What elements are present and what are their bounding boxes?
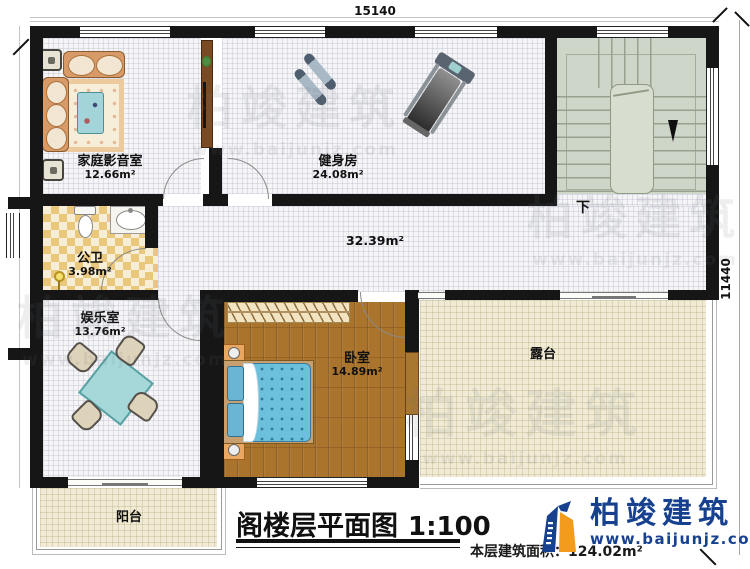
brand-name: 柏竣建筑 [590, 498, 750, 530]
wardrobe-rod [227, 311, 350, 313]
wall [367, 477, 418, 488]
wall [8, 348, 30, 360]
window [257, 477, 367, 488]
room-label-balcony: 阳台 [99, 510, 159, 525]
wall [30, 477, 68, 488]
stairs-landing [610, 84, 654, 194]
window [415, 26, 497, 38]
wall [405, 290, 419, 352]
dimension-line [739, 20, 740, 555]
wall [706, 26, 719, 68]
dimension-tick [712, 7, 728, 23]
window [80, 26, 170, 38]
pillow [227, 366, 244, 401]
terrace-opening [418, 292, 445, 299]
window [6, 213, 20, 258]
room-label-bedroom: 卧室14.89m² [317, 351, 397, 379]
brand-website: www.baijunjz.com [590, 530, 750, 548]
toilet-bowl-icon [78, 215, 93, 238]
plant-icon [202, 56, 211, 67]
speaker-icon [40, 49, 62, 71]
stairs-steps-top [598, 38, 662, 88]
wall [170, 26, 255, 38]
wall [325, 26, 415, 38]
window [405, 415, 419, 460]
toilet-icon [74, 206, 96, 215]
floor-hall [158, 206, 706, 292]
wall [668, 290, 719, 300]
window [255, 26, 325, 38]
window [597, 26, 668, 38]
room-label-bathroom: 公卫3.98m² [60, 251, 120, 279]
floor-drain-stem [58, 281, 60, 290]
floor-plan-canvas: 柏竣建筑www.baijunjz.com 柏竣建筑www.baijunjz.co… [0, 0, 750, 569]
dimension-tick [734, 11, 750, 27]
tv-icon [203, 82, 206, 128]
bed-sheet-fold [243, 363, 259, 442]
title-underline-thick [236, 539, 460, 543]
wall [212, 290, 358, 302]
stairs-steps-left [557, 96, 613, 192]
wall [30, 194, 163, 206]
sink-icon [116, 210, 146, 230]
stairs-direction-arrow-icon [668, 120, 678, 142]
wall [203, 194, 228, 206]
wall [706, 165, 719, 300]
wall [272, 194, 545, 206]
wardrobe [227, 302, 350, 323]
coffee-table [77, 92, 104, 134]
room-label-terrace: 露台 [513, 347, 573, 362]
terrace-sliding-door [560, 292, 668, 299]
wall [30, 26, 43, 488]
pillow [227, 403, 244, 437]
stairs-steps-right [650, 96, 706, 192]
wall [445, 290, 560, 300]
dimension-height: 11440 [719, 249, 733, 309]
terrace-railing-outer [420, 300, 717, 489]
wall [209, 148, 222, 194]
window [706, 68, 719, 165]
balcony-sliding-door [68, 479, 182, 486]
room-label-entertainment: 娱乐室13.76m² [62, 311, 138, 339]
wall [200, 290, 224, 477]
room-label-hall-area: 32.39m² [340, 234, 410, 249]
plan-title: 阁楼层平面图1:100 [236, 504, 491, 543]
brand-logo-icon [534, 498, 584, 558]
nightstand [222, 344, 245, 361]
floor-bathroom-door [145, 248, 158, 290]
floor-gym [222, 38, 545, 194]
room-label-gym: 健身房24.08m² [295, 154, 381, 182]
dimension-width: 15140 [340, 4, 410, 18]
brand-block: 柏竣建筑 www.baijunjz.com [534, 498, 750, 558]
title-underline-thin [236, 547, 460, 548]
dimension-line [30, 21, 719, 22]
dimension-tick [13, 39, 30, 56]
wall [545, 26, 557, 206]
faucet-icon [128, 208, 133, 213]
wall [182, 477, 257, 488]
stairs-direction-label: 下 [572, 200, 594, 217]
sofa [63, 51, 125, 78]
sofa [42, 77, 69, 152]
wall [145, 206, 158, 248]
bedroom-side-cabinet [405, 352, 419, 415]
wall [30, 290, 158, 300]
room-label-home-theater: 家庭影音室12.66m² [55, 154, 165, 182]
wall [8, 197, 30, 209]
